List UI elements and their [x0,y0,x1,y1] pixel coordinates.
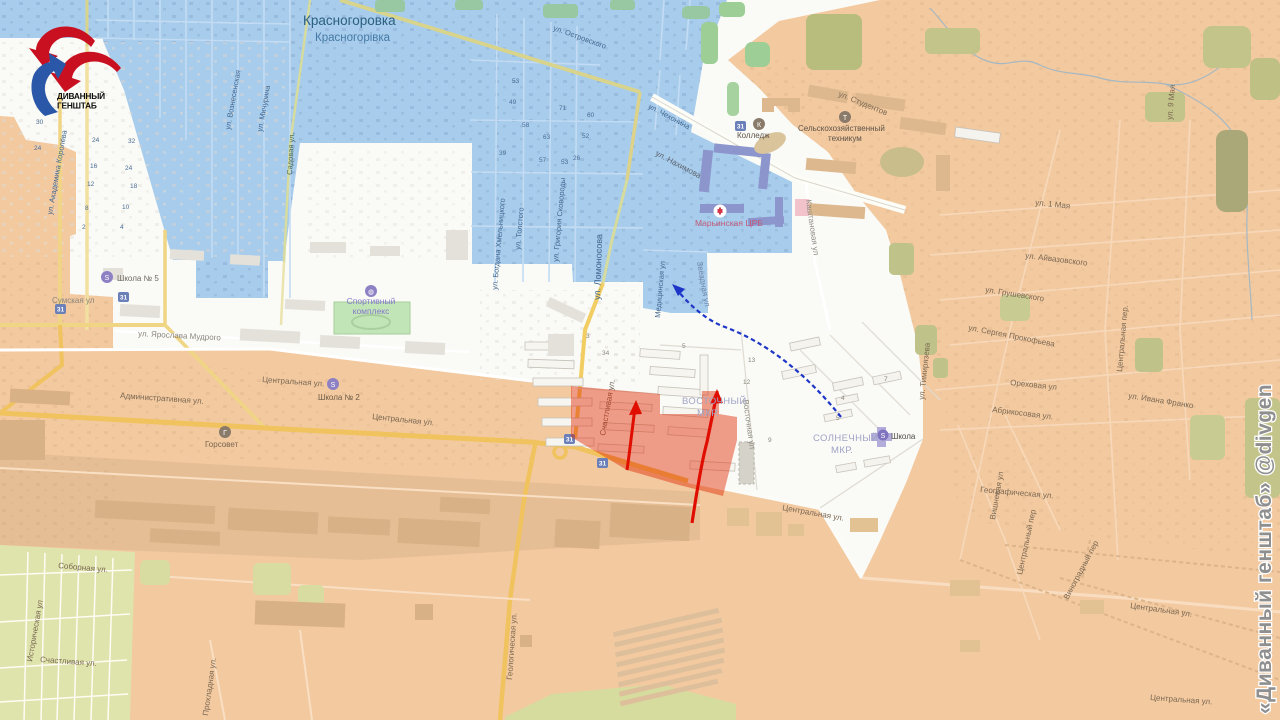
svg-text:МКР.: МКР. [697,408,719,419]
svg-text:58: 58 [522,122,530,129]
svg-text:комплекс: комплекс [353,306,390,316]
svg-text:Школа: Школа [891,432,916,441]
svg-text:Красногорівка: Красногорівка [315,32,391,44]
svg-text:31: 31 [57,307,65,314]
svg-text:Сельскохозяйственный: Сельскохозяйственный [798,124,885,133]
svg-text:5: 5 [682,343,686,350]
svg-text:Сумская ул: Сумская ул [52,296,95,305]
svg-text:МКР.: МКР. [831,445,853,456]
svg-text:39: 39 [499,150,507,157]
svg-text:24: 24 [34,145,42,152]
svg-text:63: 63 [543,134,551,141]
svg-text:24: 24 [92,137,100,144]
svg-text:Спортивный: Спортивный [347,296,396,306]
svg-text:4: 4 [120,224,124,231]
svg-text:31: 31 [737,124,745,131]
svg-text:Колледж: Колледж [737,131,770,140]
svg-text:12: 12 [87,181,95,188]
svg-text:Школа № 5: Школа № 5 [117,274,159,283]
svg-text:10: 10 [122,204,130,211]
svg-text:4: 4 [841,395,845,402]
svg-text:31: 31 [599,461,607,468]
svg-text:57: 57 [539,157,547,164]
svg-text:7: 7 [884,376,888,383]
svg-text:13: 13 [748,357,756,364]
svg-text:71: 71 [559,105,567,112]
svg-text:3: 3 [586,333,590,340]
svg-text:техникум: техникум [828,134,862,143]
svg-text:12: 12 [743,379,751,386]
svg-text:32: 32 [128,138,136,145]
svg-text:60: 60 [587,112,595,119]
svg-text:53: 53 [561,159,569,166]
svg-text:49: 49 [509,99,517,106]
svg-text:Школа № 2: Школа № 2 [318,393,360,402]
svg-text:Т: Т [843,115,848,122]
svg-text:30: 30 [36,119,44,126]
svg-text:S: S [105,275,110,282]
svg-text:52: 52 [582,133,590,140]
svg-text:34: 34 [602,350,610,357]
svg-text:18: 18 [130,183,138,190]
svg-text:9: 9 [768,437,772,444]
svg-text:◍: ◍ [368,289,374,296]
svg-text:«Диванный генштаб» @divgen: «Диванный генштаб» @divgen [1253,384,1276,714]
svg-text:ДИВАННЫЙ: ДИВАННЫЙ [57,90,105,101]
svg-text:ГЕНШТАБ: ГЕНШТАБ [57,101,97,111]
svg-text:16: 16 [90,163,98,170]
svg-text:Красногоровка: Красногоровка [303,13,396,28]
svg-text:26: 26 [573,155,581,162]
svg-text:2: 2 [82,224,86,231]
svg-text:31: 31 [120,295,128,302]
svg-text:S: S [881,433,886,440]
svg-text:Г: Г [223,430,227,437]
svg-text:ВОСТОЧНЫЙ: ВОСТОЧНЫЙ [682,395,747,407]
svg-text:Марьинская ЦРБ: Марьинская ЦРБ [695,218,763,228]
svg-text:СОЛНЕЧНЫЙ: СОЛНЕЧНЫЙ [813,432,878,444]
svg-text:53: 53 [512,78,520,85]
svg-text:24: 24 [125,165,133,172]
svg-text:Горсовет: Горсовет [205,440,239,449]
svg-text:S: S [331,382,336,389]
svg-text:8: 8 [85,205,89,212]
